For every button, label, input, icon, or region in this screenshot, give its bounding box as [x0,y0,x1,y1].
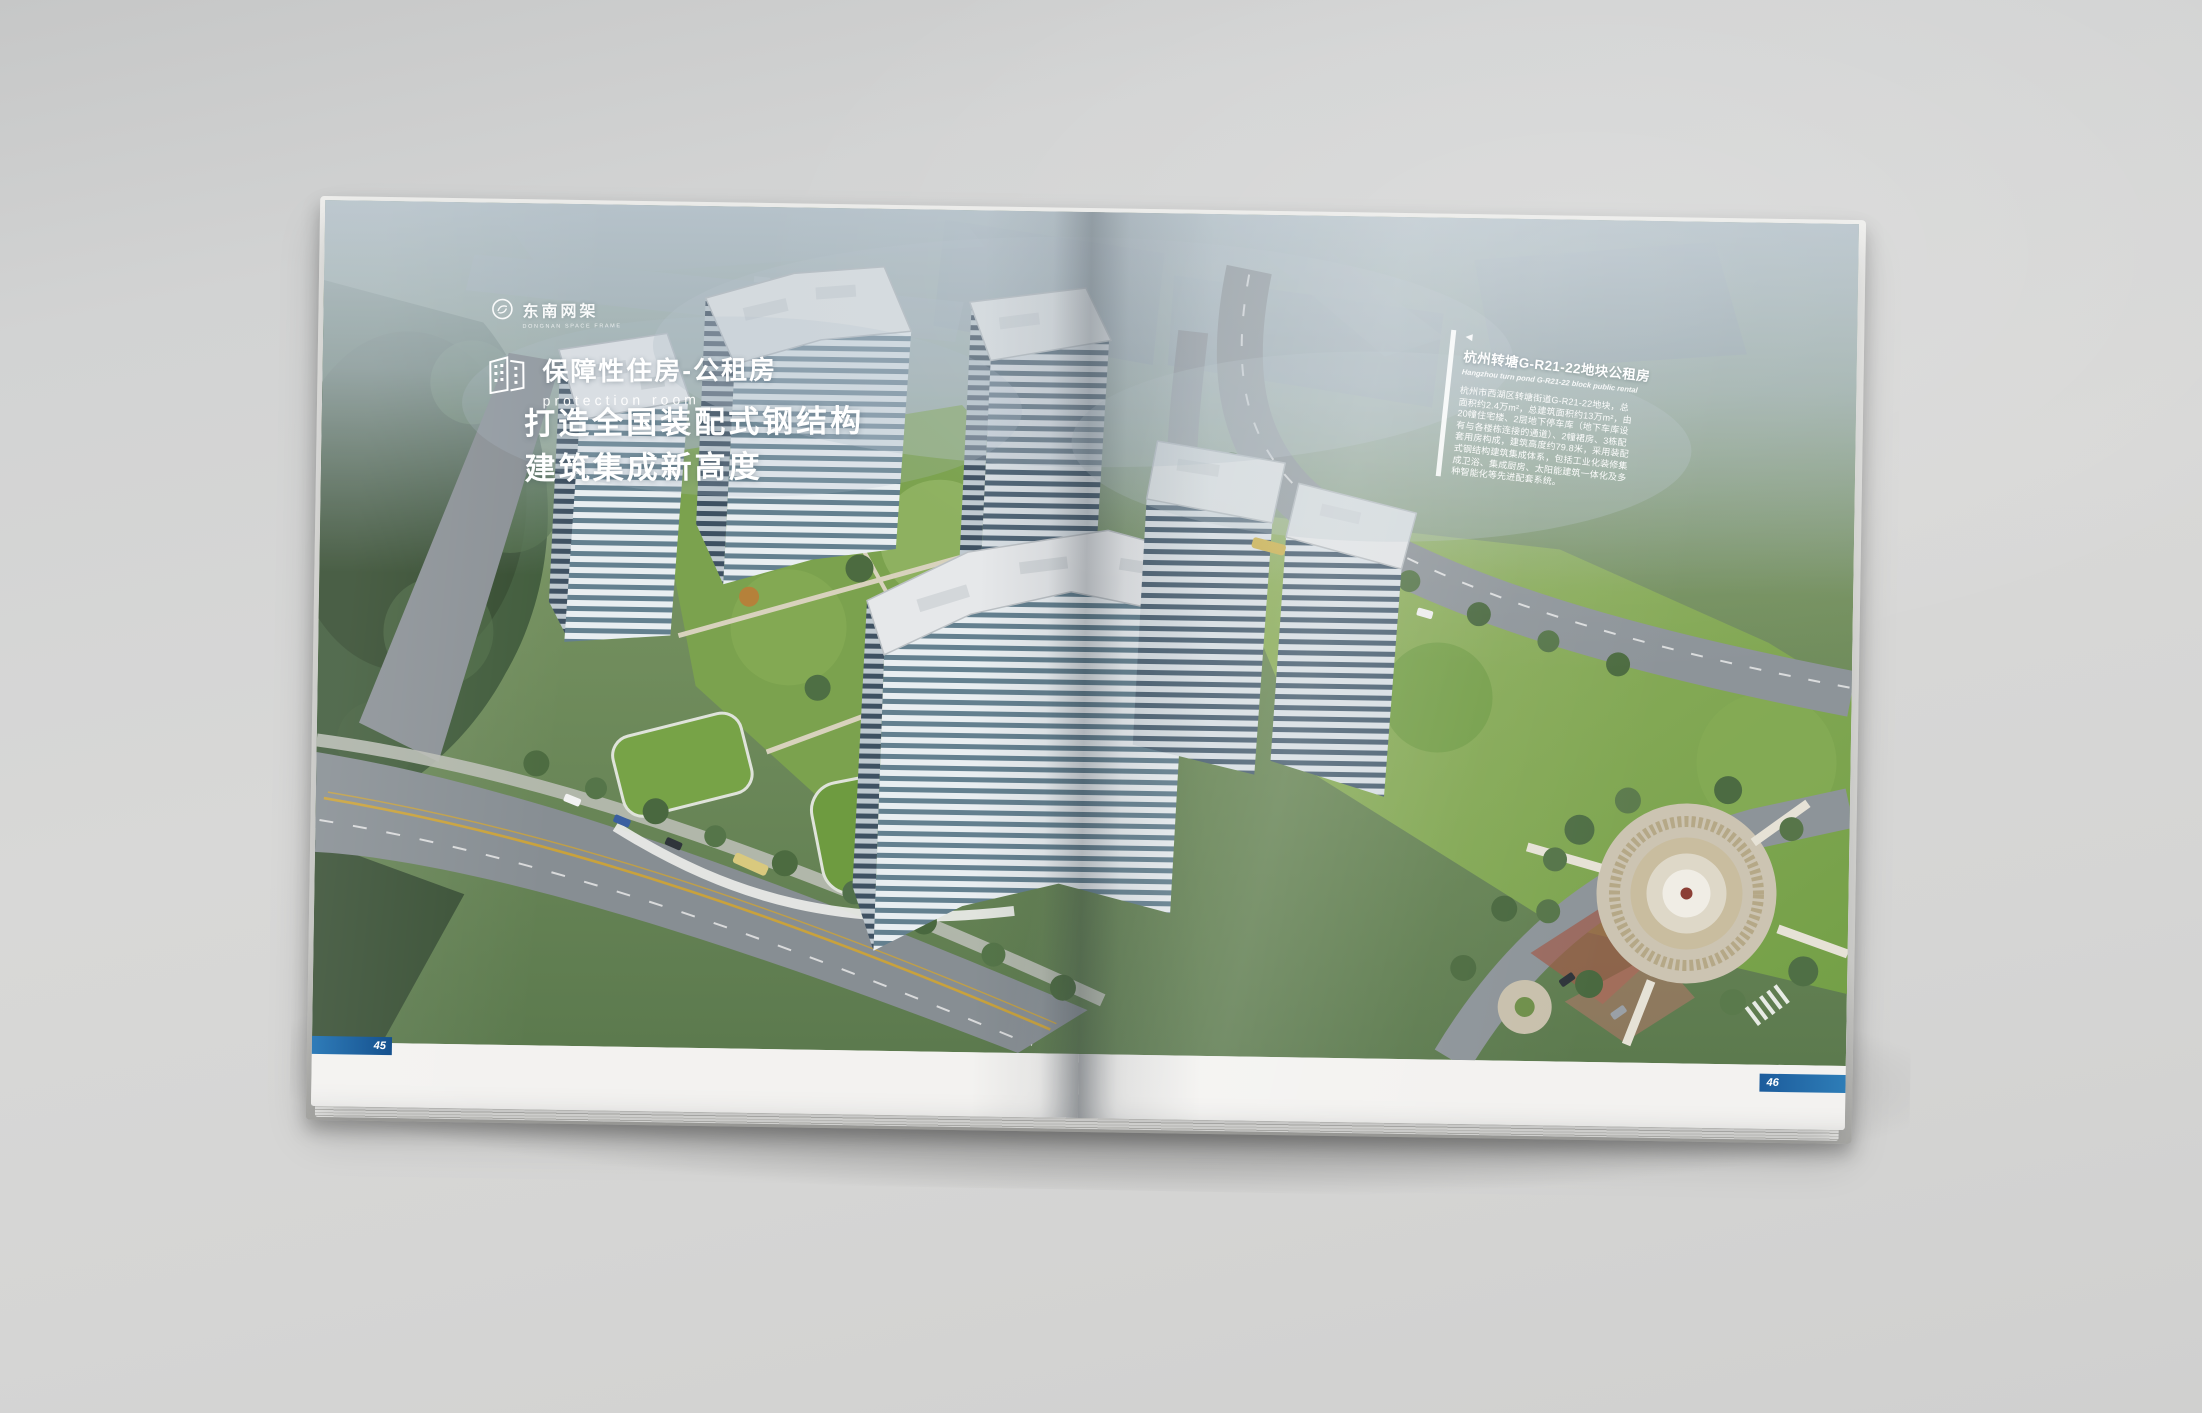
headline: 打造全国装配式钢结构 建筑集成新高度 [524,398,865,491]
project-info-panel: ◀ 杭州转塘G-R21-22地块公租房 Hangzhou turn pond G… [1436,330,1661,498]
logo-name: 东南网架 [522,297,621,322]
logo-mark-icon [491,298,513,320]
headline-line-1: 打造全国装配式钢结构 [524,398,864,446]
logo-tagline: DONGNAN SPACE FRAME [523,323,622,330]
program-title: 保障性住房-公租房 [542,350,777,389]
open-brochure: 东南网架 DONGNAN SPACE FRAME 保障性住房-公租房 prote… [311,200,1859,1130]
buildings-outline-icon [487,352,527,394]
page-number-right: 46 [1766,1077,1778,1089]
page-number-bar-left: 45 [312,1036,392,1055]
photo-backdrop: 东南网架 DONGNAN SPACE FRAME 保障性住房-公租房 prote… [0,0,2202,1413]
aerial-rendering [312,200,1859,1066]
page-number-bar-right: 46 [1759,1074,1845,1093]
brand-logo: 东南网架 DONGNAN SPACE FRAME [491,297,621,330]
headline-line-2: 建筑集成新高度 [524,443,864,491]
page-number-left: 45 [374,1040,386,1052]
